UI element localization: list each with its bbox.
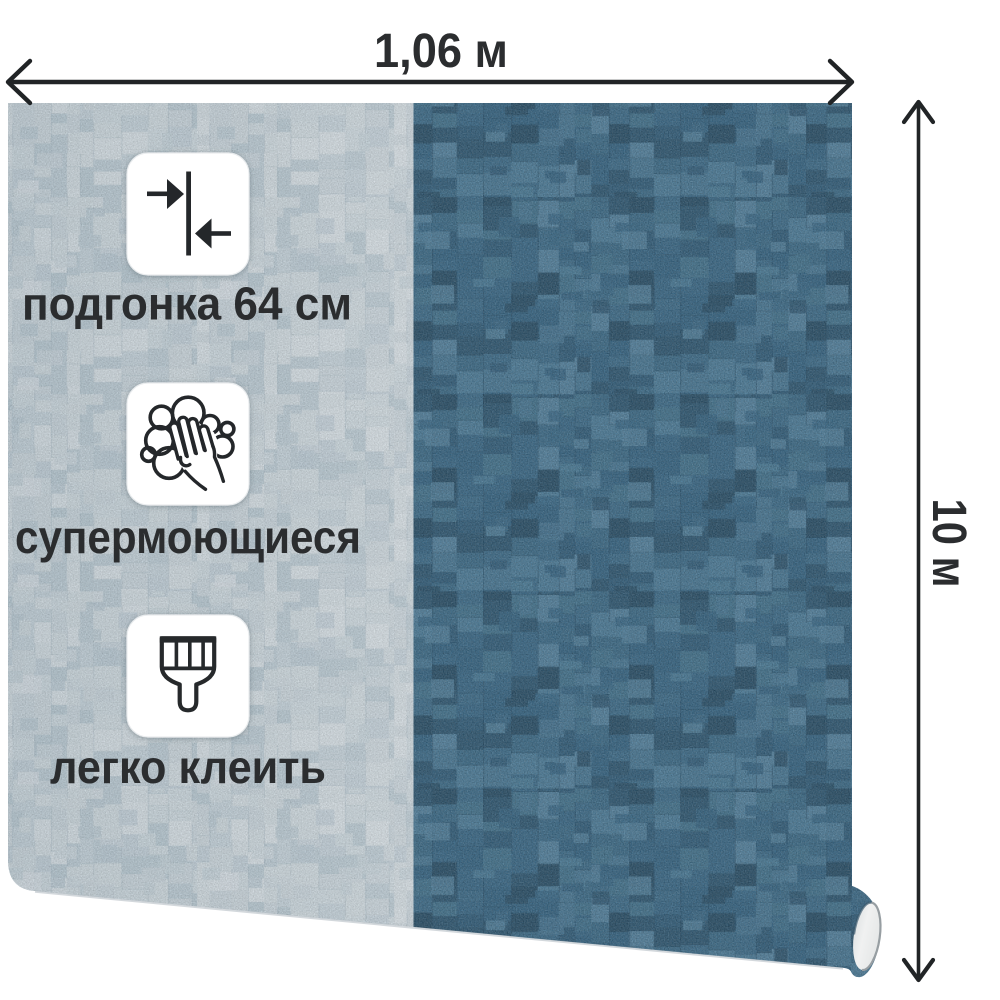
svg-text:1,06 м: 1,06 м — [374, 25, 508, 78]
svg-text:супермоющиеся: супермоющиеся — [15, 511, 361, 563]
svg-text:легко клеить: легко клеить — [50, 741, 326, 793]
svg-text:10 м: 10 м — [922, 499, 975, 588]
svg-text:подгонка 64 см: подгонка 64 см — [22, 278, 352, 330]
